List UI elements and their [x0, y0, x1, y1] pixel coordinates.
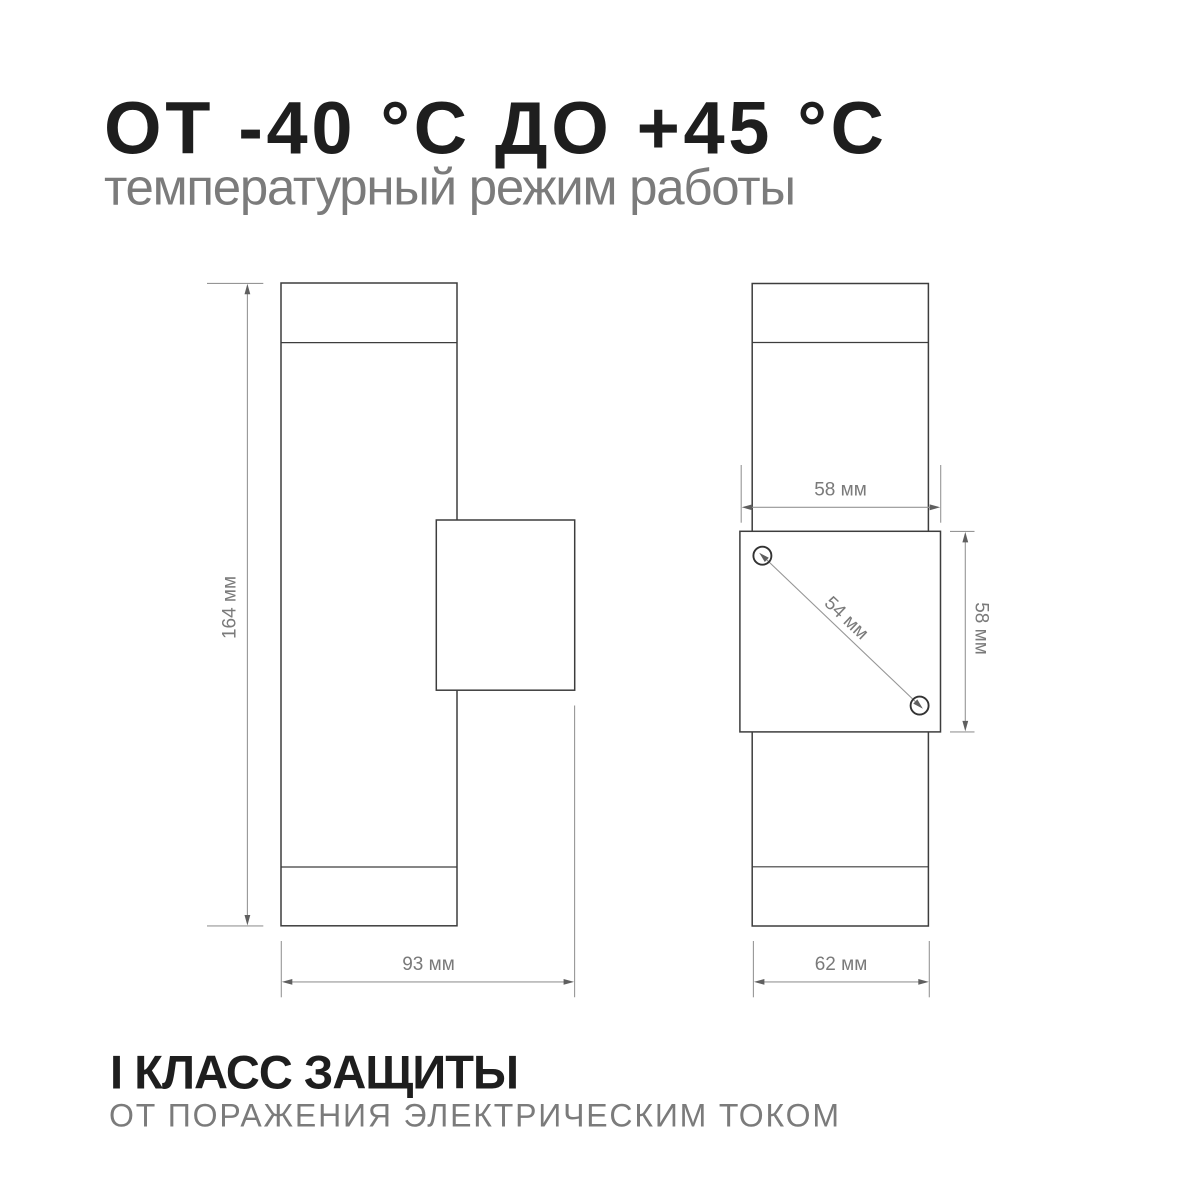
svg-text:62 мм: 62 мм [815, 954, 868, 975]
svg-text:I КЛАСС ЗАЩИТЫ: I КЛАСС ЗАЩИТЫ [110, 1045, 519, 1098]
svg-text:58 мм: 58 мм [814, 479, 867, 500]
svg-text:ОТ ПОРАЖЕНИЯ ЭЛЕКТРИЧЕСКИМ ТОК: ОТ ПОРАЖЕНИЯ ЭЛЕКТРИЧЕСКИМ ТОКОМ [109, 1097, 839, 1133]
svg-text:164 мм: 164 мм [220, 576, 241, 639]
svg-text:93 мм: 93 мм [402, 954, 455, 975]
svg-text:ОТ -40 °С ДО +45 °С: ОТ -40 °С ДО +45 °С [104, 87, 884, 170]
svg-text:температурный режим работы: температурный режим работы [104, 159, 796, 216]
svg-text:58 мм: 58 мм [971, 602, 992, 655]
